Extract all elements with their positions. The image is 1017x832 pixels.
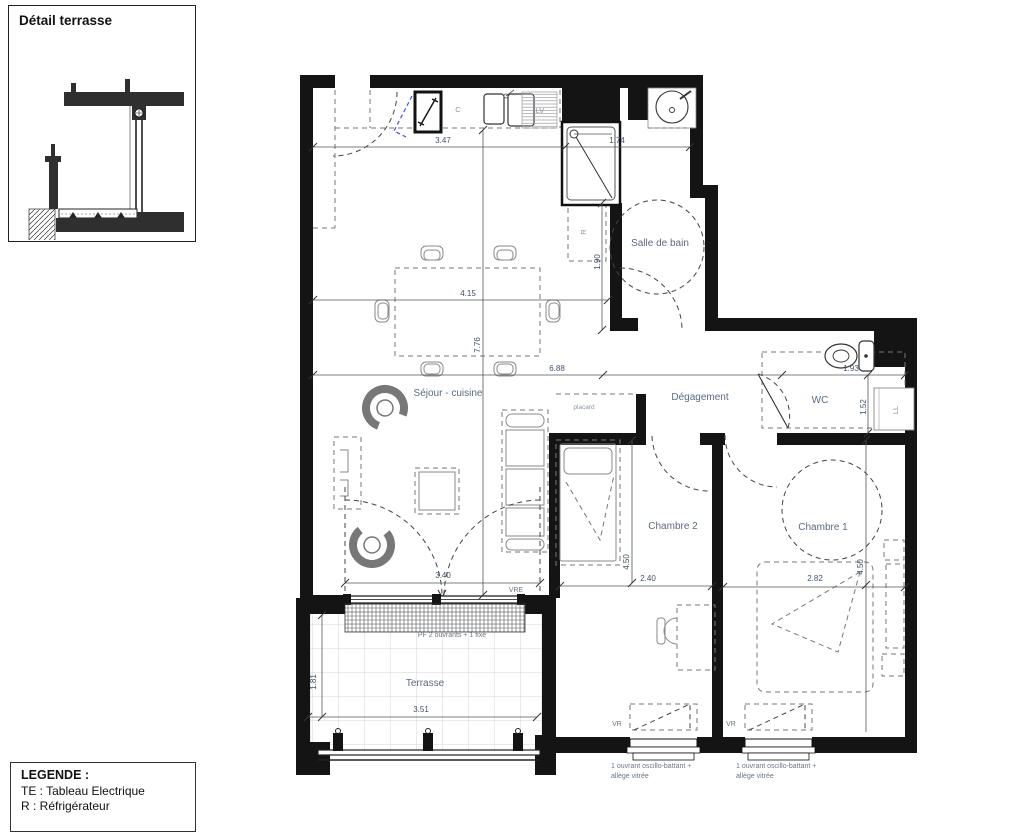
dim-ch2-width: 2.40	[640, 574, 656, 583]
tv-unit	[334, 437, 361, 509]
cooktop-label: C	[455, 105, 461, 114]
bay-window	[343, 487, 540, 632]
window-note2-line2: allège vitrée	[736, 773, 774, 780]
shower	[562, 122, 620, 205]
vr1-label: VR	[612, 721, 622, 728]
entry-door-swing	[333, 92, 397, 156]
label-terrasse: Terrasse	[406, 678, 445, 689]
label-chambre1: Chambre 1	[798, 522, 848, 533]
dim-kitchen-width: 3.47	[435, 136, 451, 145]
window-note2-line1: 1 ouvrant oscillo-battant +	[736, 763, 816, 770]
dim-bay-width: 3.40	[435, 571, 451, 580]
chambre2	[556, 436, 715, 670]
dim-terrasse-width: 3.51	[413, 705, 429, 714]
dishwasher-label: LV	[536, 106, 545, 115]
label-degagement: Dégagement	[671, 392, 728, 403]
dining-table	[375, 246, 560, 376]
sejour-furniture	[334, 246, 560, 572]
dim-ch2-height: 4.50	[622, 554, 631, 570]
armchair-1	[361, 384, 410, 433]
label-salle-de-bain: Salle de bain	[631, 238, 689, 249]
dim-ch1-width: 2.82	[807, 574, 823, 583]
bed-single	[556, 440, 620, 565]
window-vr2	[742, 704, 815, 760]
pf-note: PF 2 ouvrants + 1 fixe	[418, 632, 486, 639]
dim-wc-depth: 1.52	[859, 399, 868, 415]
desk	[657, 605, 715, 670]
legend-item-te: TE : Tableau Electrique	[21, 784, 195, 800]
shutter-box	[345, 604, 525, 632]
label-chambre2: Chambre 2	[648, 521, 698, 532]
dim-sdb-width: 1.74	[609, 136, 625, 145]
window-note1-line2: allège vitrée	[611, 773, 649, 780]
clearance-circle-ch1	[782, 460, 882, 560]
window-note1-line1: 1 ouvrant oscillo-battant +	[611, 763, 691, 770]
dim-terrasse-depth: 1.81	[309, 674, 318, 690]
armchair-2	[345, 518, 399, 572]
dim-ch1-height: 4.50	[856, 559, 865, 575]
washbasin	[648, 88, 696, 128]
dim-sdb-depth: 1.90	[593, 254, 602, 270]
nightstand-2	[882, 654, 904, 676]
detail-terrasse-drawing	[9, 30, 194, 240]
washing-machine-label: LL	[891, 406, 900, 414]
label-sejour: Séjour - cuisine	[414, 388, 483, 399]
detail-terrasse-title: Détail terrasse	[19, 13, 112, 28]
dim-table-width: 4.15	[460, 289, 476, 298]
legend-item-r: R : Réfrigérateur	[21, 799, 195, 815]
entry-door-blue	[394, 96, 412, 137]
legend-title: LEGENDE :	[21, 768, 195, 784]
coffee-table	[415, 468, 459, 514]
washing-machine: LL	[874, 388, 914, 430]
placard-label: placard	[573, 404, 595, 411]
chambre1	[725, 435, 904, 692]
dim-sejour-height: 7.76	[473, 337, 482, 353]
detail-terrasse-box: Détail terrasse	[8, 5, 196, 242]
nightstand-1	[884, 540, 904, 560]
wardrobe	[886, 564, 904, 648]
legend-box: LEGENDE : TE : Tableau Electrique R : Ré…	[10, 762, 196, 832]
fridge-label: R	[579, 229, 588, 235]
label-wc: WC	[812, 395, 829, 406]
vr2-label: VR	[726, 721, 736, 728]
sofa	[502, 410, 548, 552]
dim-sejour-width: 6.88	[549, 364, 565, 373]
bathroom	[562, 88, 704, 330]
window-vr1	[627, 704, 700, 760]
vre-label: VRE	[509, 587, 524, 594]
dim-wc-width: 1.93	[843, 364, 859, 373]
ch1-door-swing	[725, 435, 777, 487]
placard: placard	[556, 394, 636, 411]
